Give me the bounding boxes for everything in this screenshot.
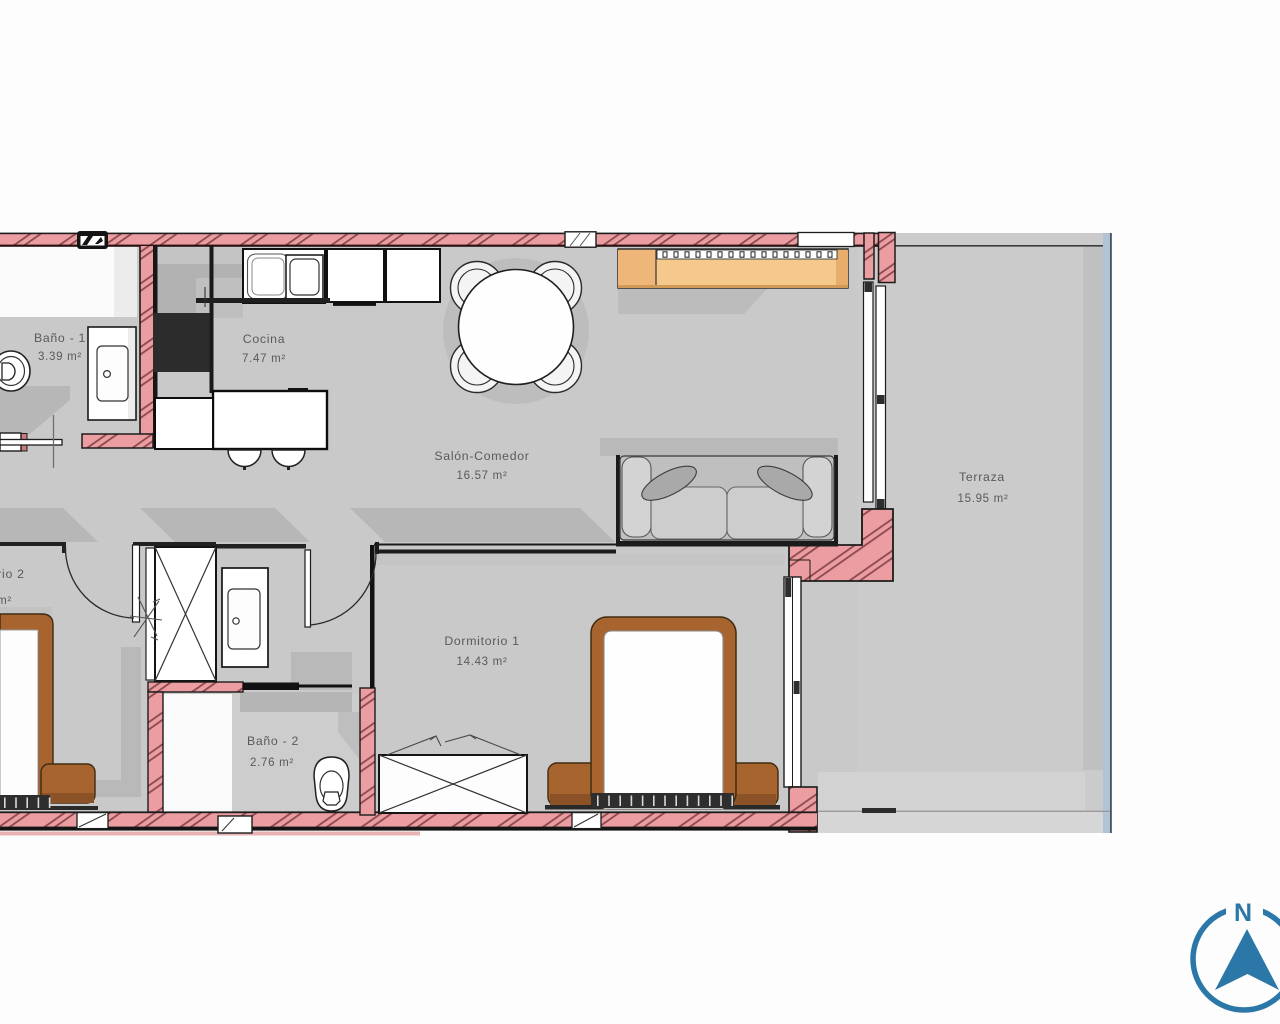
svg-text:Dormitorio 2: Dormitorio 2	[0, 567, 25, 581]
svg-text:14.43 m²: 14.43 m²	[457, 656, 508, 668]
svg-text:Terraza: Terraza	[959, 470, 1005, 484]
svg-text:7.10 m²: 7.10 m²	[0, 595, 12, 607]
svg-text:Baño - 2: Baño - 2	[247, 734, 299, 748]
svg-text:7.47 m²: 7.47 m²	[242, 353, 286, 365]
svg-text:Dormitorio 1: Dormitorio 1	[444, 634, 519, 648]
svg-text:Baño - 1: Baño - 1	[34, 331, 86, 345]
svg-text:Salón-Comedor: Salón-Comedor	[434, 449, 529, 463]
svg-text:N: N	[1234, 899, 1252, 927]
svg-text:16.57 m²: 16.57 m²	[457, 470, 508, 482]
svg-text:3.39 m²: 3.39 m²	[38, 351, 82, 363]
svg-text:15.95 m²: 15.95 m²	[958, 493, 1009, 505]
svg-text:2.76 m²: 2.76 m²	[250, 757, 294, 769]
svg-text:Cocina: Cocina	[243, 332, 285, 346]
